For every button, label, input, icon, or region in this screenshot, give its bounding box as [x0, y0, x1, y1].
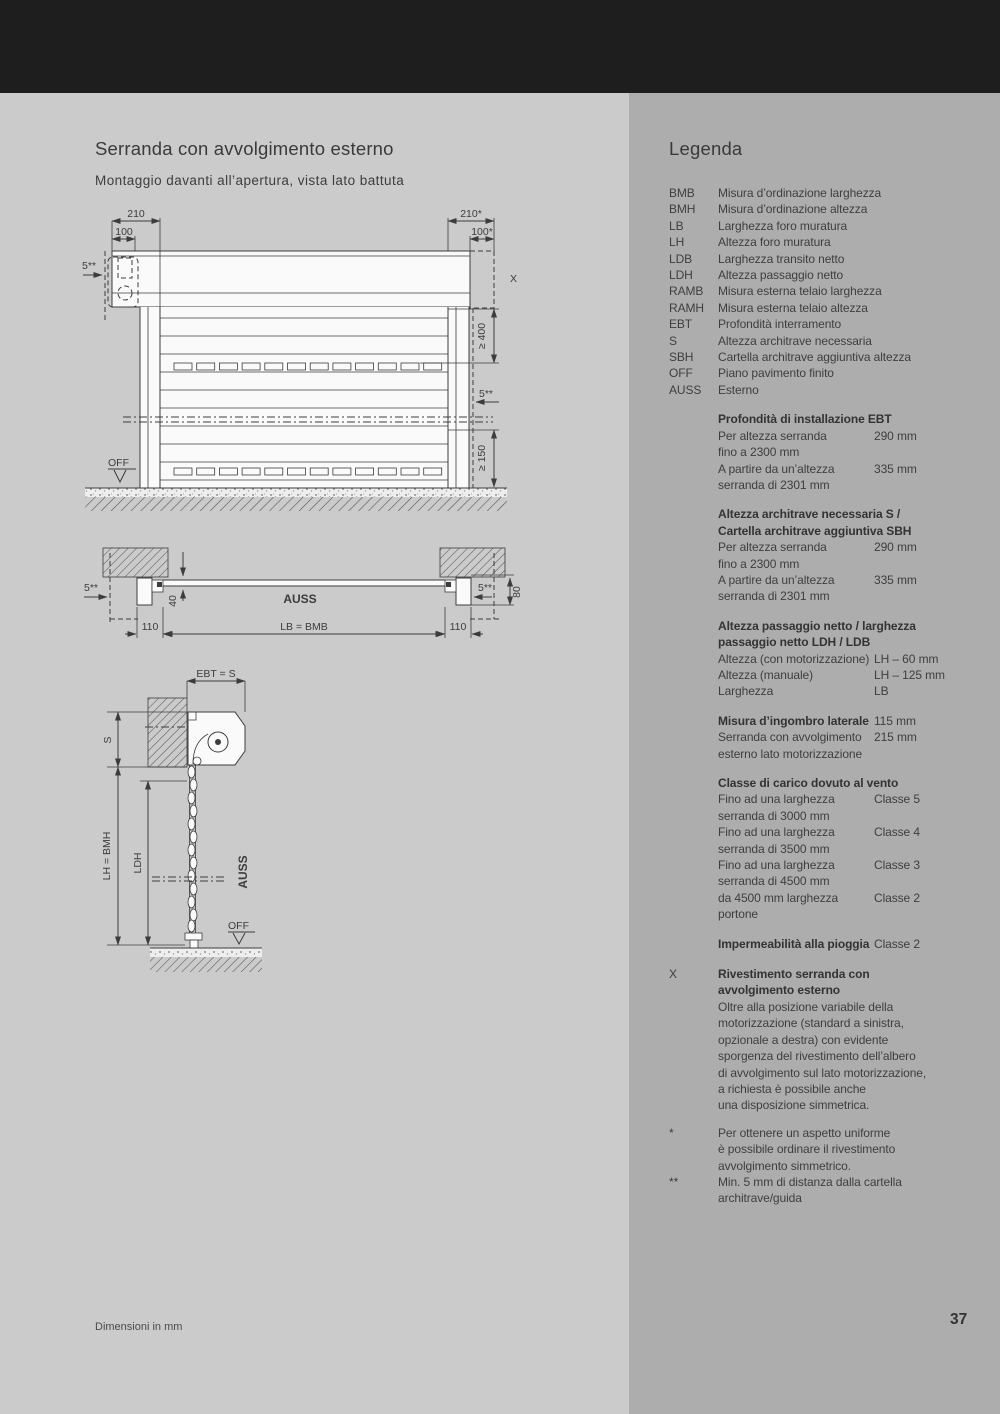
legend-text: Fino ad una larghezza — [718, 858, 835, 872]
legend-text: Profondità interramento — [718, 317, 841, 331]
legend-abbr: BMB — [669, 185, 695, 201]
legend-heading: Legenda — [669, 138, 742, 160]
page-title: Serranda con avvolgimento esterno — [95, 138, 394, 160]
off-level-label: OFF — [228, 920, 249, 932]
legend-text: Per ottenere un aspetto uniforme — [718, 1126, 890, 1140]
dim-ge150: ≥ 150 — [476, 445, 488, 471]
legend-line: EBT Profondità interramento — [629, 316, 1000, 332]
legend-text: Misura d’ingombro laterale — [718, 714, 869, 728]
x-ref-label: X — [510, 273, 517, 285]
footer-note: Dimensioni in mm — [95, 1321, 182, 1333]
legend-line: * Per ottenere un aspetto uniforme — [629, 1125, 1000, 1141]
legend-line: serranda di 3500 mm — [629, 841, 1000, 857]
legend-value: LH – 125 mm — [874, 667, 945, 683]
legend-line: architrave/guida — [629, 1190, 1000, 1206]
legend-line: BMB Misura d’ordinazione larghezza — [629, 185, 1000, 201]
legend-text: Impermeabilità alla pioggia — [718, 937, 869, 951]
legend-line: Oltre alla posizione variabile della — [629, 999, 1000, 1015]
legend-text: Oltre alla posizione variabile della — [718, 1000, 893, 1014]
legend-text: Fino ad una larghezza — [718, 825, 835, 839]
legend-value: Classe 3 — [874, 857, 920, 873]
legend-value: 290 mm — [874, 539, 917, 555]
legend-line: Impermeabilità alla pioggia Classe 2 — [629, 936, 1000, 952]
legend-line: LB Larghezza foro muratura — [629, 218, 1000, 234]
dim-ge400: ≥ 400 — [476, 323, 488, 349]
legend-line: A partire da un’altezza 335 mm — [629, 572, 1000, 588]
legend-text: opzionale a destra) con evidente — [718, 1033, 888, 1047]
legend-line: avvolgimento esterno — [629, 982, 1000, 998]
legend-line: LDB Larghezza transito netto — [629, 251, 1000, 267]
legend-line: portone — [629, 906, 1000, 922]
legend-text: Altezza architrave necessaria — [718, 334, 872, 348]
legend-text: serranda di 4500 mm — [718, 874, 830, 888]
curtain-section — [188, 765, 197, 933]
legend-abbr: RAMB — [669, 283, 703, 299]
auss-label: AUSS — [283, 592, 316, 606]
legend-line: Fino ad una larghezza Classe 4 — [629, 824, 1000, 840]
legend-line: Classe di carico dovuto al vento — [629, 775, 1000, 791]
legend-abbr: S — [669, 333, 677, 349]
legend-line: X Rivestimento serranda con — [629, 966, 1000, 982]
legend-text: Profondità di installazione EBT — [718, 412, 892, 426]
legend-value: Classe 2 — [874, 890, 920, 906]
legend-line: è possibile ordinare il rivestimento — [629, 1141, 1000, 1157]
dim-110-right: 110 — [450, 621, 467, 633]
page-number: 37 — [950, 1311, 967, 1329]
legend-line: Fino ad una larghezza Classe 3 — [629, 857, 1000, 873]
legend-line: AUSS Esterno — [629, 382, 1000, 398]
bottom-profile — [185, 933, 202, 940]
legend-line: da 4500 mm larghezza Classe 2 — [629, 890, 1000, 906]
legend-text: serranda di 3500 mm — [718, 842, 830, 856]
legend-text: Per altezza serranda — [718, 429, 827, 443]
legend-line: Per altezza serranda 290 mm — [629, 539, 1000, 555]
legend-abbr: LB — [669, 218, 683, 234]
legend-text: Cartella architrave aggiuntiva SBH — [718, 524, 911, 538]
legend-abbr: RAMH — [669, 300, 704, 316]
legend-value: Classe 5 — [874, 791, 920, 807]
guide-rail-right — [445, 578, 471, 605]
legend-value: 335 mm — [874, 461, 917, 477]
legend-text: Misura d’ordinazione larghezza — [718, 186, 881, 200]
dim-100: 100 — [115, 226, 133, 238]
legend-line: Per altezza serranda 290 mm — [629, 428, 1000, 444]
dim-80: 80 — [511, 586, 523, 598]
legend-line: di avvolgimento sul lato motorizzazione, — [629, 1065, 1000, 1081]
legend-text: Larghezza foro muratura — [718, 219, 847, 233]
legend-line: LH Altezza foro muratura — [629, 234, 1000, 250]
legend-text: a richiesta è possibile anche — [718, 1082, 866, 1096]
legend-lines: BMB Misura d’ordinazione larghezza BMH M… — [629, 185, 1000, 1207]
legend-value: LH – 60 mm — [874, 651, 938, 667]
legend-line: Fino ad una larghezza Classe 5 — [629, 791, 1000, 807]
floor-level-arrow — [233, 933, 245, 944]
legend-text: di avvolgimento sul lato motorizzazione, — [718, 1066, 926, 1080]
legend-text: da 4500 mm larghezza — [718, 891, 838, 905]
off-level-label: OFF — [108, 457, 129, 469]
legend-line: serranda di 4500 mm — [629, 873, 1000, 889]
legend-value: 335 mm — [874, 572, 917, 588]
legend-text: Altezza (con motorizzazione) — [718, 652, 869, 666]
legend-line: Altezza (manuale) LH – 125 mm — [629, 667, 1000, 683]
legend-text: Altezza architrave necessaria S / — [718, 507, 900, 521]
legend-text: Min. 5 mm di distanza dalla cartella — [718, 1175, 902, 1189]
legend-text: Misura d’ordinazione altezza — [718, 202, 867, 216]
legend-text: Altezza foro muratura — [718, 235, 831, 249]
legend-line: avvolgimento simmetrico. — [629, 1158, 1000, 1174]
legend-text: avvolgimento esterno — [718, 983, 840, 997]
legend-value: Classe 2 — [874, 936, 920, 952]
dim-210: 210 — [127, 208, 145, 220]
ground-strip — [85, 488, 507, 497]
legend-text: Larghezza transito netto — [718, 252, 844, 266]
wall-right — [440, 548, 505, 577]
legend-text: architrave/guida — [718, 1191, 802, 1205]
dim-ldh: LDH — [132, 852, 144, 873]
legend-abbr: AUSS — [669, 382, 701, 398]
legend-text: Misura esterna telaio altezza — [718, 301, 868, 315]
legend-abbr: OFF — [669, 365, 693, 381]
legend-line: a richiesta è possibile anche — [629, 1081, 1000, 1097]
legend-text: A partire da un’altezza — [718, 462, 834, 476]
auss-label: AUSS — [236, 855, 250, 888]
legend-text: Esterno — [718, 383, 759, 397]
legend-line: RAMH Misura esterna telaio altezza — [629, 300, 1000, 316]
legend-text: serranda di 2301 mm — [718, 589, 830, 603]
legend-text: Serranda con avvolgimento — [718, 730, 862, 744]
legend-text: A partire da un’altezza — [718, 573, 834, 587]
shutter-housing — [112, 251, 470, 307]
legend-line: BMH Misura d’ordinazione altezza — [629, 201, 1000, 217]
legend-text: sporgenza del rivestimento dell’albero — [718, 1049, 916, 1063]
legend-value: 215 mm — [874, 729, 917, 745]
dim-lh-bmh: LH = BMH — [101, 832, 113, 881]
legend-value: 115 mm — [874, 713, 916, 729]
legend-text: motorizzazione (standard a sinistra, — [718, 1016, 904, 1030]
legend-text: una disposizione simmetrica. — [718, 1098, 869, 1112]
dim-210-star: 210* — [460, 208, 482, 220]
legend-abbr: EBT — [669, 316, 692, 332]
legend-line: ** Min. 5 mm di distanza dalla cartella — [629, 1174, 1000, 1190]
dim-5-right: 5** — [479, 388, 493, 400]
dim-110-left: 110 — [142, 621, 159, 633]
legend-text: Misura esterna telaio larghezza — [718, 284, 882, 298]
legend-line: RAMB Misura esterna telaio larghezza — [629, 283, 1000, 299]
legend-line: Altezza passaggio netto / larghezza — [629, 618, 1000, 634]
guide-rail-left — [137, 578, 163, 605]
page-subtitle: Montaggio davanti all’apertura, vista la… — [95, 173, 404, 188]
legend-line: OFF Piano pavimento finito — [629, 365, 1000, 381]
legend-text: è possibile ordinare il rivestimento — [718, 1142, 895, 1156]
legend-line: Cartella architrave aggiuntiva SBH — [629, 523, 1000, 539]
dim-5-left: 5** — [82, 260, 96, 272]
lintel-wall — [148, 698, 187, 767]
top-band — [0, 0, 1000, 93]
legend-abbr: * — [669, 1125, 674, 1141]
legend-line: Altezza architrave necessaria S / — [629, 506, 1000, 522]
legend-text: esterno lato motorizzazione — [718, 747, 862, 761]
drawing-front-view: 210 100 210* 100* X ≥ 400 5** ≥ 150 5** … — [80, 205, 520, 515]
floor-level-arrow — [114, 470, 126, 482]
legend-text: Per altezza serranda — [718, 540, 827, 554]
legend-value: LB — [874, 683, 888, 699]
legend-text: serranda di 3000 mm — [718, 809, 830, 823]
legend-text: portone — [718, 907, 758, 921]
legend-line: una disposizione simmetrica. — [629, 1097, 1000, 1113]
legend-text: Altezza (manuale) — [718, 668, 813, 682]
legend-line: S Altezza architrave necessaria — [629, 333, 1000, 349]
dim-40: 40 — [167, 595, 179, 607]
legend-line: Misura d’ingombro laterale 115 mm — [629, 713, 1000, 729]
legend-line: SBH Cartella architrave aggiuntiva altez… — [629, 349, 1000, 365]
legend-text: Cartella architrave aggiuntiva altezza — [718, 350, 911, 364]
legend-abbr: BMH — [669, 201, 695, 217]
ground-hatch — [85, 497, 507, 511]
legend-line: LDH Altezza passaggio netto — [629, 267, 1000, 283]
ground-strip — [150, 948, 262, 957]
legend-line: Profondità di installazione EBT — [629, 411, 1000, 427]
legend-text: passaggio netto LDH / LDB — [718, 635, 870, 649]
legend-text: avvolgimento simmetrico. — [718, 1159, 851, 1173]
legend-abbr: ** — [669, 1174, 678, 1190]
legend-text: fino a 2300 mm — [718, 445, 799, 459]
cover-extension-box — [470, 251, 494, 308]
legend-text: Altezza passaggio netto — [718, 268, 843, 282]
legend-line: A partire da un’altezza 335 mm — [629, 461, 1000, 477]
legend-abbr: LDB — [669, 251, 692, 267]
legend-line: Serranda con avvolgimento 215 mm — [629, 729, 1000, 745]
legend-text: serranda di 2301 mm — [718, 478, 830, 492]
wall-left — [103, 548, 168, 577]
legend-line: fino a 2300 mm — [629, 556, 1000, 572]
legend-panel: Legenda BMB Misura d’ordinazione larghez… — [629, 93, 1000, 1414]
catalog-page: Serranda con avvolgimento esterno Montag… — [0, 0, 1000, 1414]
legend-line: esterno lato motorizzazione — [629, 746, 1000, 762]
legend-abbr: LDH — [669, 267, 693, 283]
legend-text: Classe di carico dovuto al vento — [718, 776, 898, 790]
legend-text: Fino ad una larghezza — [718, 792, 835, 806]
legend-line: motorizzazione (standard a sinistra, — [629, 1015, 1000, 1031]
dim-lb-bmb: LB = BMB — [280, 621, 328, 633]
legend-abbr: X — [669, 966, 677, 982]
dim-ebt-s: EBT = S — [196, 668, 235, 680]
legend-abbr: SBH — [669, 349, 693, 365]
legend-line: serranda di 2301 mm — [629, 588, 1000, 604]
legend-text: Piano pavimento finito — [718, 366, 834, 380]
drawing-plan-section: 40 AUSS 5** 5** 80 110 LB = BMB 110 — [80, 545, 530, 650]
dim-s: S — [102, 736, 114, 743]
legend-line: fino a 2300 mm — [629, 444, 1000, 460]
legend-line: passaggio netto LDH / LDB — [629, 634, 1000, 650]
legend-value: Classe 4 — [874, 824, 920, 840]
dim-5-left: 5** — [84, 582, 98, 594]
drawing-side-section: EBT = S S LH = BMH LDH — [95, 668, 275, 980]
legend-line: Altezza (con motorizzazione) LH – 60 mm — [629, 651, 1000, 667]
legend-abbr: LH — [669, 234, 684, 250]
legend-text: Larghezza — [718, 684, 773, 698]
legend-text: Altezza passaggio netto / larghezza — [718, 619, 916, 633]
dim-5-right: 5** — [478, 582, 492, 594]
legend-line: opzionale a destra) con evidente — [629, 1032, 1000, 1048]
legend-line: serranda di 2301 mm — [629, 477, 1000, 493]
ground-hatch — [150, 957, 262, 972]
legend-line: sporgenza del rivestimento dell’albero — [629, 1048, 1000, 1064]
legend-text: fino a 2300 mm — [718, 557, 799, 571]
legend-value: 290 mm — [874, 428, 917, 444]
legend-line: Larghezza LB — [629, 683, 1000, 699]
dim-100-star: 100* — [471, 226, 493, 238]
legend-text: Rivestimento serranda con — [718, 967, 870, 981]
legend-line: serranda di 3000 mm — [629, 808, 1000, 824]
